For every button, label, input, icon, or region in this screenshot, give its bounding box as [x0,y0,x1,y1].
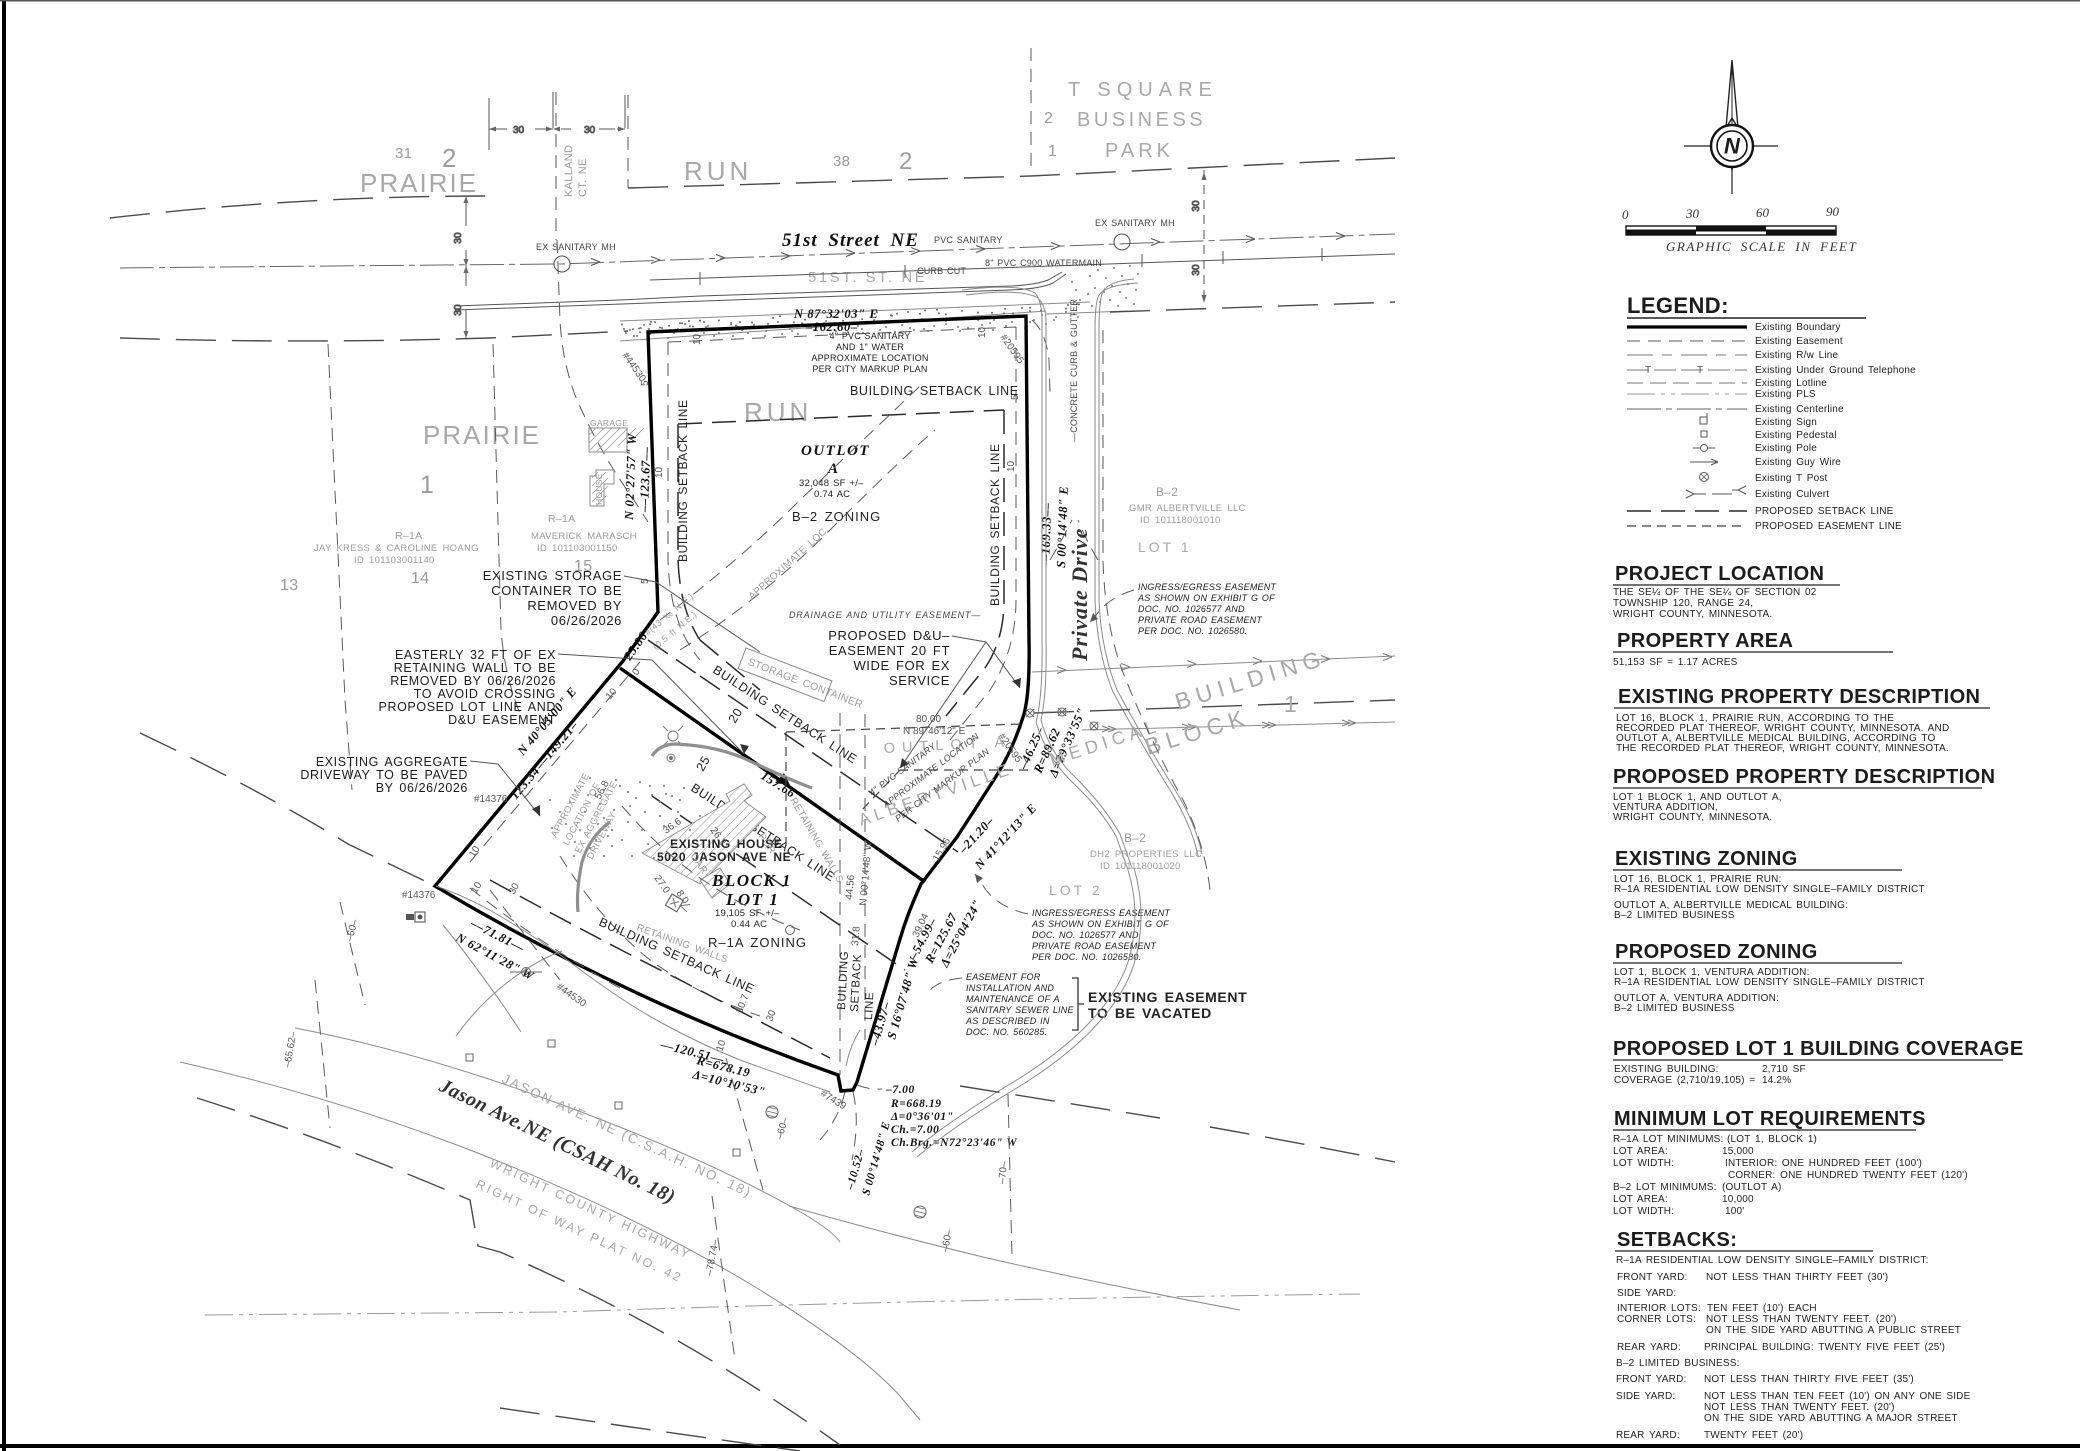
svg-text:LINE: LINE [863,992,876,1021]
svg-text:T: T [1697,365,1703,376]
svg-text:1: 1 [1048,143,1057,160]
svg-text:CURB CUT: CURB CUT [917,266,966,276]
svg-text:30: 30 [453,232,464,244]
svg-text:38: 38 [833,153,850,170]
svg-text:30: 30 [1191,264,1202,276]
svg-text:CT. NE: CT. NE [577,158,589,197]
svg-text:EXISTING EASEMENT: EXISTING EASEMENT [1088,989,1247,1005]
svg-text:EXISTING BUILDING:: EXISTING BUILDING: [1614,1064,1719,1075]
svg-text:–7.00: –7.00 [885,1084,915,1096]
svg-text:TEN FEET (10') EACH: TEN FEET (10') EACH [1707,1303,1817,1314]
svg-text:4" PVC SANITARY: 4" PVC SANITARY [830,331,911,341]
svg-text:LEGEND:: LEGEND: [1627,293,1729,318]
svg-text:44.56: 44.56 [844,874,857,900]
svg-text:R–1A LOT MINIMUMS:: R–1A LOT MINIMUMS: [1613,1134,1724,1145]
svg-text:TO AVOID CROSSING: TO AVOID CROSSING [414,687,556,701]
svg-text:R–1A RESIDENTIAL LOW DENSITY S: R–1A RESIDENTIAL LOW DENSITY SINGLE–FAMI… [1614,977,1925,988]
svg-text:LOT AREA:: LOT AREA: [1613,1194,1668,1205]
svg-text:LOT 1: LOT 1 [1138,539,1192,555]
svg-text:SANITARY SEWER LINE: SANITARY SEWER LINE [966,1005,1074,1015]
svg-text:T SQUARE: T SQUARE [1068,79,1218,101]
svg-text:31: 31 [395,145,412,162]
svg-text:DOC. NO. 560285.: DOC. NO. 560285. [966,1027,1047,1037]
svg-text:REMOVED BY: REMOVED BY [527,598,622,613]
svg-text:5: 5 [1010,394,1021,400]
svg-text:PROPOSED EASEMENT LINE: PROPOSED EASEMENT LINE [1755,521,1902,532]
svg-text:PRINCIPAL BUILDING: TWENTY FIV: PRINCIPAL BUILDING: TWENTY FIVE FEET (25… [1704,1342,1945,1353]
svg-text:ON THE SIDE YARD ABUTTING A PU: ON THE SIDE YARD ABUTTING A PUBLIC STREE… [1706,1325,1961,1336]
svg-text:CORNER LOTS:: CORNER LOTS: [1617,1314,1696,1325]
svg-text:EXISTING ZONING: EXISTING ZONING [1615,848,1798,870]
svg-text:AND 1" WATER: AND 1" WATER [836,342,904,352]
svg-text:APPROXIMATE LOCATION: APPROXIMATE LOCATION [811,353,928,363]
svg-text:B–2 LIMITED BUSINESS: B–2 LIMITED BUSINESS [1614,1003,1735,1014]
svg-text:PRAIRIE: PRAIRIE [360,168,478,198]
svg-text:EX SANITARY MH: EX SANITARY MH [1095,218,1175,228]
svg-text:B–2 LIMITED BUSINESS: B–2 LIMITED BUSINESS [1614,910,1735,921]
svg-text:R–1A ZONING: R–1A ZONING [708,935,807,950]
svg-text:RUN: RUN [744,397,812,427]
svg-text:ON THE SIDE YARD ABUTTING A MA: ON THE SIDE YARD ABUTTING A MAJOR STREET [1704,1413,1958,1424]
svg-text:MAVERICK MARASCH: MAVERICK MARASCH [531,531,637,542]
svg-text:NOT LESS THAN THIRTY FIVE FEET: NOT LESS THAN THIRTY FIVE FEET (35') [1704,1374,1914,1385]
svg-text:FRONT YARD:: FRONT YARD: [1617,1272,1687,1283]
svg-text:0: 0 [1622,207,1629,222]
svg-text:LOT AREA:: LOT AREA: [1613,1146,1668,1157]
svg-text:–70–: –70– [997,1161,1010,1185]
svg-text:A: A [827,461,839,477]
svg-text:PROJECT LOCATION: PROJECT LOCATION [1615,563,1824,585]
svg-text:D&U EASEMENT: D&U EASEMENT [448,713,556,727]
svg-text:BLOCK 1: BLOCK 1 [711,871,792,890]
svg-text:AS SHOWN ON EXHIBIT G OF: AS SHOWN ON EXHIBIT G OF [1137,593,1275,603]
svg-text:R–1A RESIDENTIAL LOW DENSITY S: R–1A RESIDENTIAL LOW DENSITY SINGLE–FAMI… [1616,1255,1929,1266]
svg-text:14.2%: 14.2% [1762,1075,1791,1086]
svg-text:NOT LESS THAN TWENTY FEET. (20: NOT LESS THAN TWENTY FEET. (20') [1704,1402,1895,1413]
svg-text:8" PVC C900 WATERMAIN: 8" PVC C900 WATERMAIN [985,258,1102,268]
svg-text:COVERAGE (2,710/19,105) =: COVERAGE (2,710/19,105) = [1614,1075,1755,1086]
svg-text:SIDE YARD:: SIDE YARD: [1617,1288,1676,1299]
svg-text:#14376: #14376 [474,794,508,805]
svg-text:Existing Pedestal: Existing Pedestal [1755,430,1837,441]
svg-text:32,048 SF +/–: 32,048 SF +/– [799,478,864,489]
svg-text:DOC. NO. 1026577 AND: DOC. NO. 1026577 AND [1138,604,1245,614]
svg-text:0.74 AC: 0.74 AC [814,489,850,500]
svg-text:INSTALLATION AND: INSTALLATION AND [966,983,1054,993]
svg-text:AS DESCRIBED IN: AS DESCRIBED IN [965,1016,1050,1026]
svg-text:R–1A: R–1A [395,530,422,542]
svg-text:5: 5 [640,380,651,386]
svg-text:2: 2 [442,143,457,173]
svg-text:SETBACKS:: SETBACKS: [1617,1229,1737,1251]
svg-text:Existing Centerline: Existing Centerline [1755,404,1844,415]
svg-text:PER DOC. NO. 1026580.: PER DOC. NO. 1026580. [1032,952,1141,962]
svg-text:WIDE FOR EX: WIDE FOR EX [853,658,950,673]
svg-text:CONTAINER TO BE: CONTAINER TO BE [491,583,622,598]
svg-text:Δ=0°36'01": Δ=0°36'01" [890,1111,954,1123]
svg-text:R–1A RESIDENTIAL LOW DENSITY S: R–1A RESIDENTIAL LOW DENSITY SINGLE–FAMI… [1614,884,1925,895]
svg-text:ID 101118001020: ID 101118001020 [1100,861,1181,872]
svg-text:#14376: #14376 [402,890,436,901]
svg-text:BUILDING SETBACK LINE: BUILDING SETBACK LINE [850,384,1019,398]
svg-text:RUN: RUN [684,156,752,186]
svg-text:14: 14 [411,570,429,587]
svg-text:Existing Guy Wire: Existing Guy Wire [1755,457,1841,468]
svg-text:Existing Lotline: Existing Lotline [1755,378,1827,389]
svg-text:GARAGE: GARAGE [590,418,628,428]
svg-text:MINIMUM LOT REQUIREMENTS: MINIMUM LOT REQUIREMENTS [1614,1108,1926,1130]
svg-text:AS SHOWN ON EXHIBIT G OF: AS SHOWN ON EXHIBIT G OF [1031,919,1169,929]
svg-text:13: 13 [280,577,298,594]
svg-text:SIDE YARD:: SIDE YARD: [1616,1391,1675,1402]
svg-text:Existing Easement: Existing Easement [1755,336,1843,347]
svg-text:10: 10 [692,333,703,345]
svg-text:2,710 SF: 2,710 SF [1762,1064,1806,1075]
svg-text:INTERIOR: ONE HUNDRED FEET (10: INTERIOR: ONE HUNDRED FEET (100') [1725,1158,1922,1169]
svg-text:PRAIRIE: PRAIRIE [423,420,541,450]
svg-text:51,153 SF = 1.17 ACRES: 51,153 SF = 1.17 ACRES [1613,657,1738,668]
svg-text:15,000: 15,000 [1722,1146,1754,1157]
svg-text:HOUSE: HOUSE [594,473,604,505]
svg-text:NOT LESS THAN TWENTY FEET. (20: NOT LESS THAN TWENTY FEET. (20') [1706,1314,1897,1325]
svg-text:PROPOSED ZONING: PROPOSED ZONING [1615,941,1818,963]
svg-text:––123.67––: ––123.67–– [637,446,653,513]
svg-text:TWENTY FEET (20'): TWENTY FEET (20') [1704,1430,1803,1441]
svg-text:N 87°32'03" E: N 87°32'03" E [793,307,878,321]
svg-text:JAY KRESS & CAROLINE HOANG: JAY KRESS & CAROLINE HOANG [314,543,479,554]
svg-text:DOC. NO. 1026577 AND: DOC. NO. 1026577 AND [1032,930,1139,940]
svg-text:N: N [1724,134,1741,159]
svg-text:EXISTING PROPERTY DESCRIPTION: EXISTING PROPERTY DESCRIPTION [1618,686,1980,708]
svg-text:NOT LESS THAN TEN FEET (10') O: NOT LESS THAN TEN FEET (10') ON ANY ONE … [1704,1391,1971,1402]
svg-text:Ch.=7.00: Ch.=7.00 [891,1124,939,1136]
svg-text:PER DOC. NO. 1026580.: PER DOC. NO. 1026580. [1138,626,1247,636]
svg-text:51st Street NE: 51st Street NE [782,230,919,251]
svg-text:B–2 ZONING: B–2 ZONING [792,509,881,524]
svg-text:ID 101103001150: ID 101103001150 [537,543,618,554]
svg-text:THE RECORDED PLAT THEREOF, WRI: THE RECORDED PLAT THEREOF, WRIGHT COUNTY… [1616,743,1949,754]
svg-text:PARK: PARK [1105,140,1174,162]
svg-text:ID 101103001140: ID 101103001140 [354,555,435,566]
svg-text:EXISTING STORAGE: EXISTING STORAGE [483,568,622,583]
svg-text:REAR YARD:: REAR YARD: [1617,1342,1681,1353]
svg-text:B–2 LIMITED BUSINESS:: B–2 LIMITED BUSINESS: [1616,1358,1740,1369]
svg-text:Existing R/w Line: Existing R/w Line [1755,350,1839,361]
svg-text:PROPOSED LOT 1 BUILDING COVERA: PROPOSED LOT 1 BUILDING COVERAGE [1613,1038,2024,1060]
svg-text:PRIVATE ROAD EASEMENT: PRIVATE ROAD EASEMENT [1138,615,1263,625]
svg-text:THE SE¼ OF THE SE¼ OF SECTION: THE SE¼ OF THE SE¼ OF SECTION 02 [1613,586,1817,598]
svg-text:Private Drive: Private Drive [1067,528,1092,662]
svg-text:R=668.19: R=668.19 [890,1098,942,1110]
svg-text:PROPOSED PROPERTY DESCRIPTION: PROPOSED PROPERTY DESCRIPTION [1613,766,1995,788]
svg-text:T: T [1645,365,1651,376]
svg-text:PER CITY MARKUP PLAN: PER CITY MARKUP PLAN [812,364,927,374]
svg-text:CORNER: ONE HUNDRED TWENTY FEE: CORNER: ONE HUNDRED TWENTY FEET (120') [1728,1170,1968,1181]
svg-text:10,000: 10,000 [1722,1194,1754,1205]
svg-text:REAR YARD:: REAR YARD: [1616,1430,1680,1441]
svg-text:80.00: 80.00 [916,714,941,725]
svg-text:BY 06/26/2026: BY 06/26/2026 [376,781,468,795]
svg-text:BUILDING SETBACK LINE: BUILDING SETBACK LINE [988,443,1002,606]
svg-text:30: 30 [1191,200,1202,212]
svg-text:GRAPHIC SCALE IN FEET: GRAPHIC SCALE IN FEET [1666,239,1857,254]
svg-text:INGRESS/EGRESS EASEMENT: INGRESS/EGRESS EASEMENT [1032,908,1171,918]
svg-text:PROPOSED LOT LINE AND: PROPOSED LOT LINE AND [379,700,556,714]
svg-text:31.8: 31.8 [850,925,863,946]
svg-text:EASTERLY 32 FT OF EX: EASTERLY 32 FT OF EX [395,648,556,662]
svg-text:R–1A: R–1A [548,513,575,525]
svg-text:PVC SANITARY: PVC SANITARY [934,235,1003,245]
svg-text:Existing Under Ground Telephon: Existing Under Ground Telephone [1755,365,1916,376]
svg-text:DRAINAGE AND UTILITY EASEMENT—: DRAINAGE AND UTILITY EASEMENT— [789,610,981,620]
svg-text:INTERIOR LOTS:: INTERIOR LOTS: [1617,1303,1701,1314]
svg-text:30: 30 [1685,206,1700,221]
svg-text:EASEMENT FOR: EASEMENT FOR [966,972,1041,982]
svg-text:RETAINING WALL TO BE: RETAINING WALL TO BE [394,661,556,675]
svg-text:30: 30 [584,125,596,136]
svg-text:51ST. ST. NE: 51ST. ST. NE [808,269,927,286]
svg-text:Existing Pole: Existing Pole [1755,443,1817,454]
svg-text:PROPOSED SETBACK LINE: PROPOSED SETBACK LINE [1755,506,1894,517]
svg-text:OUTLOT: OUTLOT [801,443,870,459]
svg-text:(LOT 1, BLOCK 1): (LOT 1, BLOCK 1) [1727,1134,1817,1145]
svg-text:LOT WIDTH:: LOT WIDTH: [1613,1158,1674,1169]
svg-text:EXISTING AGGREGATE: EXISTING AGGREGATE [316,755,468,769]
svg-text:LOT 2: LOT 2 [1049,882,1103,898]
svg-text:100': 100' [1725,1206,1744,1217]
svg-text:0.44 AC: 0.44 AC [731,919,767,930]
svg-text:PROPERTY AREA: PROPERTY AREA [1617,630,1793,652]
svg-text:PROPOSED D&U–: PROPOSED D&U– [828,628,950,643]
svg-text:LOT 1: LOT 1 [725,890,779,909]
svg-text:INGRESS/EGRESS EASEMENT: INGRESS/EGRESS EASEMENT [1138,582,1277,592]
svg-text:EX SANITARY MH: EX SANITARY MH [536,242,616,252]
svg-text:ID 101118001010: ID 101118001010 [1140,515,1221,526]
svg-text:19,105 SF +/–: 19,105 SF +/– [715,908,780,919]
svg-text:1: 1 [420,471,434,499]
svg-text:REMOVED BY 06/26/2026: REMOVED BY 06/26/2026 [390,674,556,688]
svg-text:30: 30 [513,125,525,136]
svg-text:Existing Boundary: Existing Boundary [1755,322,1841,333]
svg-text:1: 1 [1284,691,1304,717]
svg-text:FRONT YARD:: FRONT YARD: [1616,1374,1686,1385]
svg-text:Existing T Post: Existing T Post [1755,473,1828,484]
svg-text:10: 10 [654,466,665,478]
svg-text:2: 2 [899,148,913,175]
svg-text:EASEMENT 20 FT: EASEMENT 20 FT [829,643,950,658]
svg-text:2: 2 [1044,110,1053,127]
svg-text:DRIVEWAY TO BE PAVED: DRIVEWAY TO BE PAVED [300,768,468,782]
svg-text:Ch.Brg.=N72°23'46" W: Ch.Brg.=N72°23'46" W [891,1137,1017,1149]
svg-text:KALLAND: KALLAND [563,145,575,197]
svg-text:BUILDING SETBACK LINE: BUILDING SETBACK LINE [676,399,690,562]
svg-text:Existing PLS: Existing PLS [1755,389,1816,400]
svg-text:WRIGHT COUNTY, MINNESOTA.: WRIGHT COUNTY, MINNESOTA. [1613,609,1772,620]
svg-text:WRIGHT COUNTY, MINNESOTA.: WRIGHT COUNTY, MINNESOTA. [1613,812,1772,823]
svg-text:B–2 LOT MINIMUMS:: B–2 LOT MINIMUMS: [1613,1182,1717,1193]
svg-text:Existing Culvert: Existing Culvert [1755,489,1829,500]
svg-text:(OUTLOT A): (OUTLOT A) [1722,1182,1782,1193]
svg-text:—CONCRETE CURB & GUTTER: —CONCRETE CURB & GUTTER [1069,299,1079,442]
svg-text:SERVICE: SERVICE [889,673,950,688]
svg-text:10: 10 [1006,460,1017,472]
svg-text:GMR ALBERTVILLE LLC: GMR ALBERTVILLE LLC [1129,503,1246,514]
svg-text:MAINTENANCE OF A: MAINTENANCE OF A [966,994,1060,1004]
svg-text:90: 90 [1826,204,1840,219]
svg-text:Existing Sign: Existing Sign [1755,417,1817,428]
svg-text:NOT LESS THAN THIRTY FEET (30': NOT LESS THAN THIRTY FEET (30') [1706,1272,1888,1283]
svg-text:B–2: B–2 [1156,485,1178,499]
svg-text:DH2 PROPERTIES LLC: DH2 PROPERTIES LLC [1090,849,1202,860]
svg-text:LOT WIDTH:: LOT WIDTH: [1613,1206,1674,1217]
svg-text:TOWNSHIP 120, RANGE 24,: TOWNSHIP 120, RANGE 24, [1613,598,1753,609]
svg-text:B–2: B–2 [1124,831,1146,845]
svg-text:06/26/2026: 06/26/2026 [551,613,622,628]
svg-text:60: 60 [1756,205,1770,220]
svg-text:BUSINESS: BUSINESS [1077,109,1206,131]
